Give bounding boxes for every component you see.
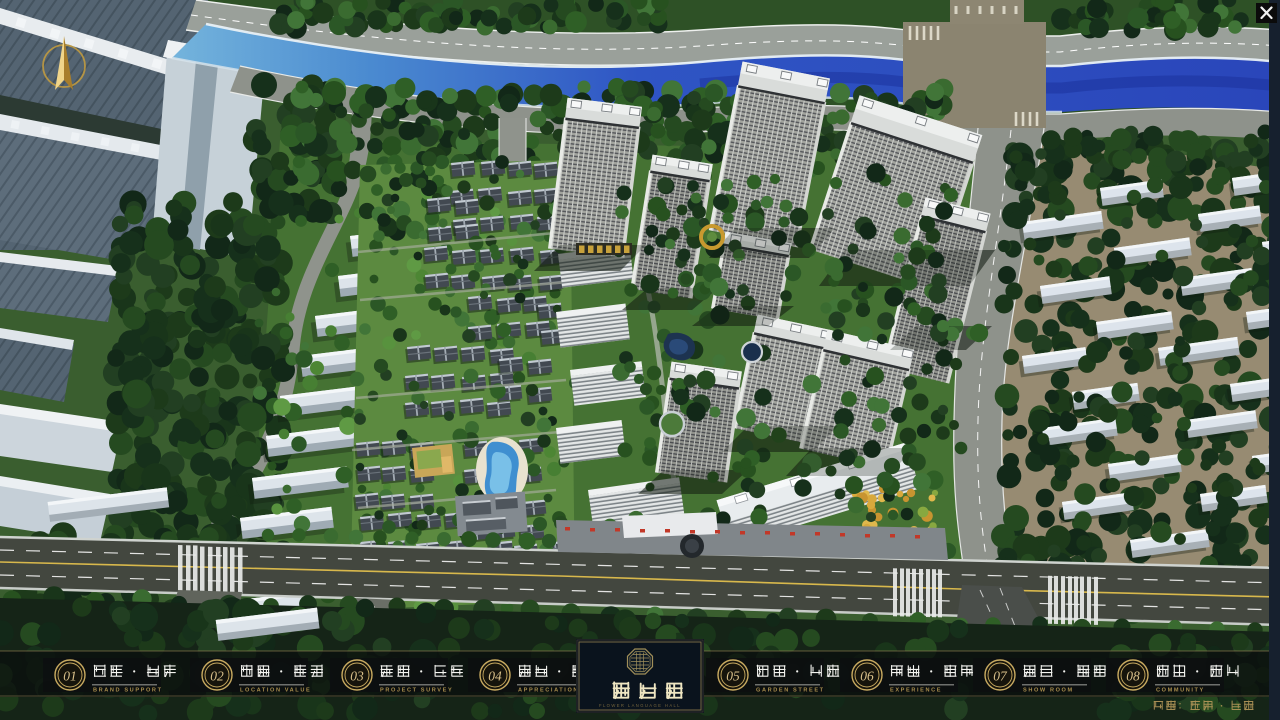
svg-text:PROJECT SURVEY: PROJECT SURVEY — [380, 688, 453, 694]
svg-text:BRAND SUPPORT: BRAND SUPPORT — [93, 688, 163, 694]
svg-text:08: 08 — [1126, 669, 1140, 684]
svg-text:FLOWER LANGUAGE HALL: FLOWER LANGUAGE HALL — [599, 703, 681, 708]
svg-text:03: 03 — [350, 669, 364, 684]
svg-text:SHOW ROOM: SHOW ROOM — [1023, 688, 1074, 694]
svg-text:APPRECIATION: APPRECIATION — [518, 688, 579, 694]
svg-text:LOCATION VALUE: LOCATION VALUE — [240, 688, 311, 694]
svg-text:04: 04 — [488, 669, 502, 684]
svg-text:02: 02 — [210, 669, 224, 684]
svg-text:COMMUNITY: COMMUNITY — [1156, 688, 1205, 694]
svg-text:06: 06 — [860, 669, 874, 684]
svg-text:01: 01 — [63, 669, 77, 684]
svg-text:GARDEN STREET: GARDEN STREET — [756, 688, 825, 694]
svg-text:07: 07 — [993, 669, 1008, 684]
svg-text:EXPERIENCE: EXPERIENCE — [890, 688, 942, 694]
svg-text:05: 05 — [726, 669, 740, 684]
